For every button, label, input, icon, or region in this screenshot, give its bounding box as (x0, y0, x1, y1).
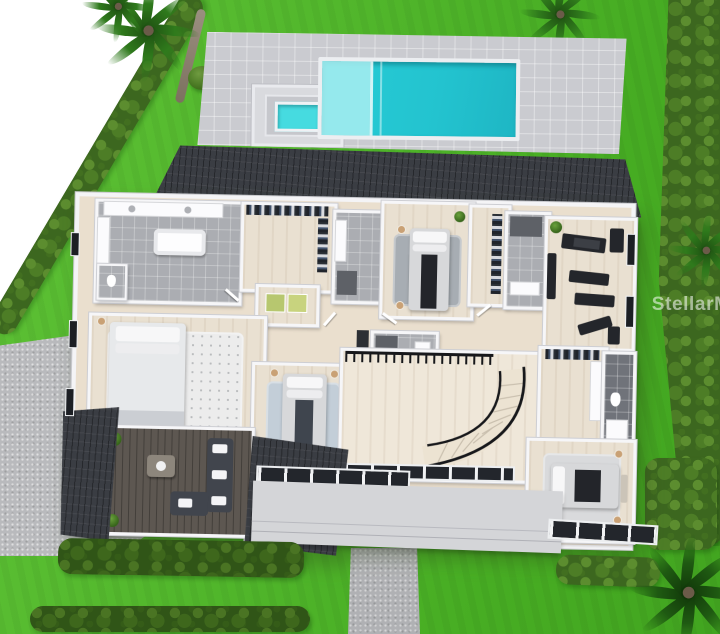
bathroom-4 (600, 351, 636, 452)
toilet (610, 392, 620, 406)
window (65, 388, 75, 416)
treadmill (561, 233, 607, 253)
watermark: StellarMLS (652, 294, 720, 316)
swimming-pool (318, 57, 521, 141)
nightstand-lamp (331, 371, 338, 378)
balcony-lounge (97, 425, 255, 538)
sectional-sofa (206, 438, 234, 513)
workout-bench (574, 293, 615, 308)
water-closet (96, 264, 127, 301)
nightstand-lamp (615, 451, 622, 458)
spa-water (275, 102, 321, 132)
window (70, 232, 80, 256)
nightstand-lamp (271, 369, 278, 376)
pool-step-line (380, 62, 383, 136)
workout-bench (568, 270, 609, 286)
sofa-chaise (170, 491, 208, 516)
bench (620, 475, 628, 503)
clothes-rack (317, 218, 328, 272)
hedge-bottom-edge (30, 606, 310, 632)
clothes-rack (545, 349, 599, 360)
shower (510, 216, 542, 237)
dryer (287, 294, 307, 313)
window (626, 234, 636, 266)
plant (550, 221, 562, 233)
walk-in-closet-2 (537, 346, 609, 441)
double-vanity (104, 202, 222, 217)
bedroom-2 (379, 201, 475, 321)
vanity (607, 420, 627, 440)
gym-machine (608, 326, 620, 344)
floor-plan-render: StellarMLS (0, 0, 720, 634)
ledge-step-edge (370, 62, 374, 136)
primary-bathroom (93, 199, 243, 306)
porch-step-line (252, 521, 562, 533)
porch-slab (251, 481, 563, 554)
hedge-front-right (556, 554, 661, 588)
hedge-front-left (58, 538, 305, 578)
bathroom-2 (331, 210, 385, 305)
shower (337, 271, 357, 295)
nightstand-lamp (396, 302, 403, 309)
window (625, 296, 635, 328)
sink (128, 205, 135, 212)
plant (454, 211, 465, 222)
window (68, 320, 78, 348)
weight-rack (610, 228, 624, 252)
grand-hall (338, 348, 543, 484)
bed (108, 322, 186, 434)
nightstand-lamp (398, 226, 405, 233)
dumbbell-rack (547, 253, 557, 299)
walk-in-closet-primary (240, 202, 338, 294)
toilet (107, 275, 116, 287)
coffee-table (147, 455, 175, 478)
sink (184, 206, 191, 213)
bed (408, 228, 450, 311)
vanity (511, 282, 539, 295)
bathtub (153, 229, 206, 256)
porch-step-line (251, 531, 561, 543)
front-walkway (348, 548, 420, 634)
pool-deck (197, 32, 626, 154)
home-gym (543, 216, 638, 352)
washer (265, 293, 285, 312)
nightstand-lamp (98, 318, 105, 325)
clothes-rack (491, 214, 503, 294)
clothes-rack (246, 205, 328, 217)
closet-shelves (590, 362, 601, 420)
tanning-ledge (322, 61, 371, 135)
vanity (335, 221, 346, 261)
